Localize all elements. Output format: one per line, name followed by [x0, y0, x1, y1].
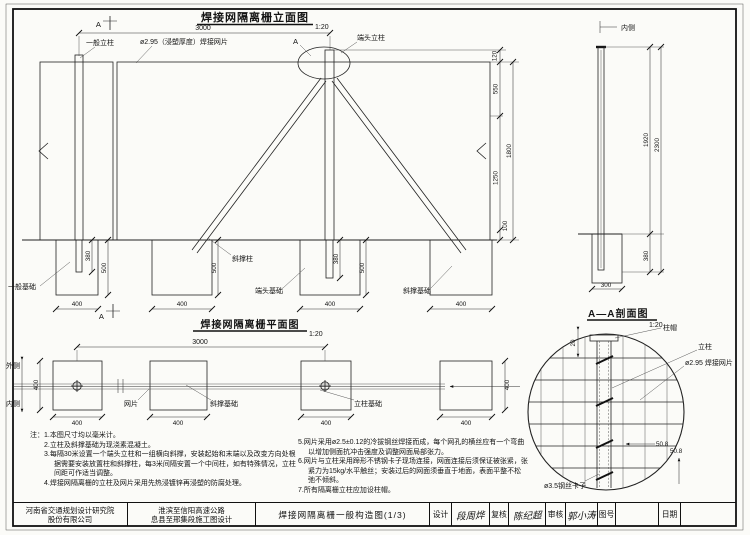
note-5: 5.网片采用ø2.5±0.12的冷拔钢丝焊接而成，每个网孔的横丝应有一个弯曲以增… — [298, 438, 528, 457]
dim-width-f4: 400 — [456, 301, 467, 308]
elevation-view: 焊接网隔离栅立面图 1:20 — [8, 10, 519, 321]
detail-post-label: 立柱 — [698, 342, 712, 351]
dim-depth-1: 500 — [101, 262, 108, 273]
elevation-span-dim: 3000 — [195, 25, 211, 32]
detail-dim-20: 20 — [570, 339, 577, 347]
plan-dim-400-left: 400 — [33, 379, 40, 390]
dim-cap: 120 — [492, 50, 499, 61]
detail-circle — [528, 334, 684, 490]
section-mark-a-top: A — [96, 20, 102, 29]
brace-post-label: 斜撑柱 — [232, 254, 253, 263]
plan-title: 焊接网隔离栅平面图 — [201, 318, 300, 331]
design-field: 设计 — [430, 503, 452, 526]
plan-view: 焊接网隔离栅平面图 1:20 — [6, 318, 520, 427]
side-dim-380: 380 — [643, 250, 650, 261]
plan-foundation-4 — [440, 361, 492, 410]
dim-lower: 1250 — [493, 171, 500, 186]
drawing-no-field: 图号 — [598, 503, 616, 526]
note-6: 6.网片与立柱采用蹄形不锈钢卡子现场连接，网面连接后须保证被张紧，张紧力为15k… — [298, 457, 528, 486]
dim-embed-1: 380 — [85, 250, 92, 261]
plan-brace-foundation-label: 斜撑基础 — [210, 399, 238, 408]
end-foundation-label: 端头基础 — [255, 286, 283, 295]
plan-dim-400-s4: 400 — [461, 420, 472, 427]
dim-upper: 550 — [493, 83, 500, 94]
drawing-title-cell: 焊接网隔离栅一般构造图(1/3) — [256, 503, 430, 526]
detail-mesh — [528, 334, 684, 490]
check-field: 复核 — [490, 503, 509, 526]
plan-foundation-2 — [150, 361, 207, 410]
plan-outer-label: 外侧 — [6, 361, 20, 370]
project-line2: 息县至邢集段施工图设计 — [151, 515, 232, 524]
notes-left-column: 注： 1.本图尺寸均以毫米计。 2.立柱及斜撑基础为现浇素混凝土。 3.每隔30… — [30, 431, 296, 489]
detail-clip-label: ø3.5钢丝卡子 — [544, 481, 586, 490]
note-4: 4.焊接网隔离栅的立柱及网片采用先热浸镀锌再浸塑的防腐处理。 — [44, 479, 296, 489]
detail-a-label: A — [293, 37, 299, 46]
elevation-title: 焊接网隔离栅立面图 — [201, 10, 309, 24]
dim-width-f2: 400 — [177, 301, 188, 308]
note-1: 1.本图尺寸均以毫米计。 — [44, 431, 296, 441]
design-signature: 段周烨 — [452, 503, 490, 526]
detail-dim-508-v: 50.8 — [670, 448, 683, 455]
company-line1: 河南省交通规划设计研究院 — [26, 506, 115, 515]
plan-mesh-label: 网片 — [124, 399, 138, 408]
dim-embed-2: 380 — [333, 253, 340, 264]
note-2: 2.立柱及斜撑基础为现浇素混凝土。 — [44, 441, 296, 451]
plan-foundation-1 — [53, 361, 102, 410]
company-cell: 河南省交通规划设计研究院 股份有限公司 — [13, 503, 128, 526]
side-dim-2300: 2300 — [654, 138, 661, 153]
dim-ground-gap: 100 — [502, 220, 509, 231]
plan-dim-400-s2: 400 — [173, 420, 184, 427]
note-7: 7.所有隔离栅立柱应加设柱帽。 — [298, 486, 528, 496]
date-value — [681, 503, 736, 526]
drawing-no-value — [616, 503, 659, 526]
brace-foundation-label: 斜撑基础 — [403, 286, 431, 295]
plan-dim-400-s1: 400 — [72, 420, 83, 427]
detail-mesh-label: ø2.95 焊接网片 — [685, 358, 733, 367]
end-post-detail-circle — [298, 47, 350, 79]
end-post-label: 端头立柱 — [357, 33, 385, 42]
plan-scale: 1:20 — [309, 331, 323, 338]
side-dim-300: 300 — [601, 282, 612, 289]
dim-depth-3: 500 — [359, 262, 366, 273]
notes-heading: 注： — [30, 431, 44, 489]
check-signature: 陈纪超 — [509, 503, 546, 526]
review-signature: 郭小涛 — [566, 503, 598, 526]
detail-cap-label: 柱帽 — [663, 323, 677, 332]
drawing-sheet: 焊接网隔离栅立面图 1:20 — [0, 0, 750, 535]
mesh-panel-right — [117, 62, 490, 240]
title-block: 河南省交通规划设计研究院 股份有限公司 淮滨至信阳高速公路 息县至邢集段施工图设… — [13, 502, 736, 526]
drawing-title: 焊接网隔离栅一般构造图(1/3) — [278, 509, 406, 521]
company-line2: 股份有限公司 — [48, 515, 92, 524]
plan-mesh-strip — [14, 379, 520, 393]
plan-foundation-3 — [301, 361, 351, 410]
project-cell: 淮滨至信阳高速公路 息县至邢集段施工图设计 — [128, 503, 256, 526]
plan-post-foundation-label: 立柱基础 — [354, 399, 382, 408]
section-detail: A—A剖面图 1:20 — [528, 307, 733, 490]
dim-depth-2: 500 — [211, 262, 218, 273]
review-field: 审核 — [546, 503, 566, 526]
plan-span-dim: 3000 — [192, 339, 208, 346]
section-mark-a-bottom: A — [99, 312, 105, 321]
dim-width-f1: 400 — [72, 301, 83, 308]
mesh-panel-left — [40, 62, 113, 240]
post-side-view: 内侧 300 1920 380 2300 — [578, 21, 664, 292]
plan-post-symbol-1 — [71, 380, 83, 392]
project-line1: 淮滨至信阳高速公路 — [158, 506, 225, 515]
side-foundation — [592, 234, 622, 283]
dim-width-f3: 400 — [325, 301, 336, 308]
general-post-label: 一般立柱 — [86, 38, 114, 47]
notes-right-column: 5.网片采用ø2.5±0.12的冷拔钢丝焊接而成，每个网孔的横丝应有一个弯曲以增… — [298, 438, 528, 496]
diagonal-braces — [192, 78, 466, 253]
foundations — [56, 240, 492, 295]
dim-total-height: 1800 — [506, 144, 513, 159]
detail-dim-508-h: 50.8 — [656, 441, 669, 448]
elevation-scale: 1:20 — [315, 24, 329, 31]
note-3: 3.每隔30米设置一个端头立柱和一组横向斜撑，安装起始和末端以及改变方向处根据需… — [44, 450, 296, 479]
detail-title: A—A剖面图 — [588, 307, 648, 320]
general-post — [75, 55, 83, 240]
plan-inner-label: 内侧 — [6, 399, 20, 408]
side-inner-label: 内侧 — [621, 23, 635, 32]
mesh-label: ø2.95（浸塑厚度）焊接网片 — [140, 37, 228, 46]
plan-dim-400-right: 400 — [504, 379, 511, 390]
plan-dim-400-s3: 400 — [321, 420, 332, 427]
side-dim-1920: 1920 — [643, 133, 650, 148]
date-field: 日期 — [659, 503, 681, 526]
general-foundation-label: 一般基础 — [8, 282, 36, 291]
